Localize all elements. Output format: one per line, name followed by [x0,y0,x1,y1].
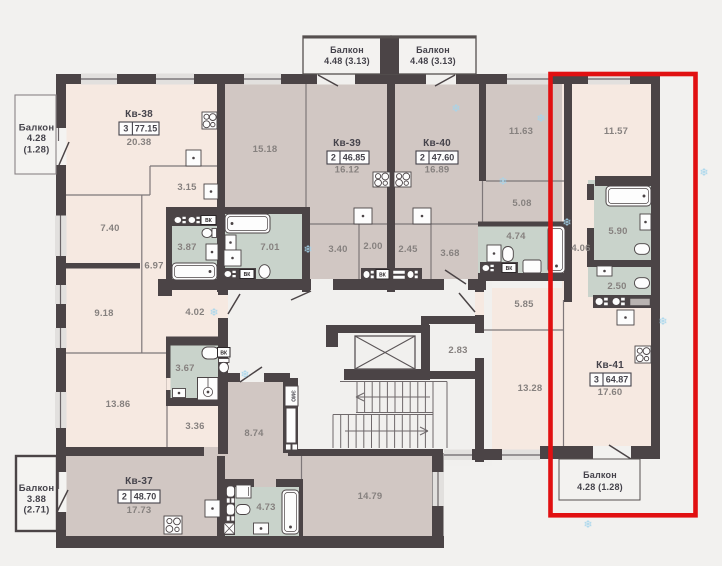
svg-text:Балкон: Балкон [416,45,450,55]
svg-text:7.40: 7.40 [100,223,119,234]
svg-text:❄: ❄ [562,217,571,229]
svg-text:Кв-38: Кв-38 [125,109,153,120]
svg-text:❄: ❄ [536,113,545,125]
svg-text:47.60: 47.60 [432,153,455,163]
svg-text:❄: ❄ [209,307,218,319]
svg-text:5.85: 5.85 [514,299,534,310]
svg-text:2: 2 [331,153,336,163]
svg-text:15.18: 15.18 [253,144,278,155]
svg-text:4.28: 4.28 [27,133,46,144]
svg-text:❄: ❄ [303,244,312,256]
svg-text:3.67: 3.67 [175,363,194,374]
svg-text:6.97: 6.97 [144,261,163,272]
svg-text:5.08: 5.08 [512,198,531,209]
svg-text:20.38: 20.38 [127,137,152,148]
svg-text:2: 2 [420,153,425,163]
svg-text:4.74: 4.74 [506,231,526,242]
svg-text:ВК: ВК [205,218,213,224]
svg-text:Балкон: Балкон [330,45,364,55]
svg-text:4.73: 4.73 [256,502,275,513]
svg-text:2.50: 2.50 [607,281,626,292]
svg-text:ВК: ВК [220,350,228,356]
svg-text:16.89: 16.89 [425,165,450,176]
svg-text:Балкон: Балкон [19,123,55,134]
svg-text:77.15: 77.15 [135,124,158,134]
svg-text:9.18: 9.18 [94,308,113,319]
svg-text:13.86: 13.86 [106,399,131,410]
svg-text:❄: ❄ [451,103,460,115]
svg-text:17.73: 17.73 [127,505,152,516]
svg-text:8.74: 8.74 [244,428,264,439]
svg-text:4.48 (3.13): 4.48 (3.13) [324,56,370,66]
svg-text:11.63: 11.63 [509,126,533,137]
svg-text:Кв-39: Кв-39 [333,138,361,149]
svg-text:4.28 (1.28): 4.28 (1.28) [577,482,623,492]
svg-text:4.02: 4.02 [185,307,204,318]
svg-text:3.36: 3.36 [185,421,204,432]
svg-text:64.87: 64.87 [606,375,629,385]
svg-text:2.83: 2.83 [448,345,467,356]
svg-text:ВК: ВК [506,266,514,272]
svg-text:Балкон: Балкон [583,470,617,480]
svg-text:3: 3 [594,375,599,385]
svg-text:(1.28): (1.28) [23,145,49,156]
svg-text:❄: ❄ [498,176,507,188]
svg-text:❄: ❄ [240,369,249,381]
svg-text:17.60: 17.60 [598,387,623,398]
svg-text:3.88: 3.88 [27,494,46,505]
svg-text:4.48 (3.13): 4.48 (3.13) [410,56,456,66]
svg-text:13.28: 13.28 [518,383,543,394]
svg-text:ВК: ВК [244,272,252,278]
svg-text:Кв-41: Кв-41 [596,360,624,371]
svg-text:14.79: 14.79 [358,491,383,502]
svg-text:46.85: 46.85 [343,153,366,163]
svg-text:Кв-40: Кв-40 [423,138,451,149]
svg-text:11.57: 11.57 [604,126,628,137]
svg-text:❄: ❄ [583,519,592,531]
svg-text:(2.71): (2.71) [23,505,49,516]
svg-text:❄: ❄ [699,167,708,179]
svg-text:ВК: ВК [379,272,387,278]
svg-text:2.45: 2.45 [398,244,418,255]
svg-text:Кв-37: Кв-37 [125,476,153,487]
svg-text:3.15: 3.15 [177,182,197,193]
svg-text:3: 3 [123,124,128,134]
svg-text:4.06: 4.06 [571,243,590,254]
svg-text:7.01: 7.01 [260,242,280,253]
svg-text:3.40: 3.40 [328,244,347,255]
svg-text:❄: ❄ [658,316,667,328]
svg-text:2.00: 2.00 [363,241,382,252]
svg-text:3.68: 3.68 [440,248,459,259]
svg-text:2: 2 [122,492,127,502]
svg-text:48.70: 48.70 [134,492,157,502]
svg-text:3.87: 3.87 [177,242,196,253]
svg-text:Балкон: Балкон [19,483,55,494]
svg-text:5.90: 5.90 [608,226,627,237]
svg-text:ЭМО: ЭМО [290,390,296,402]
svg-text:16.12: 16.12 [335,165,360,176]
